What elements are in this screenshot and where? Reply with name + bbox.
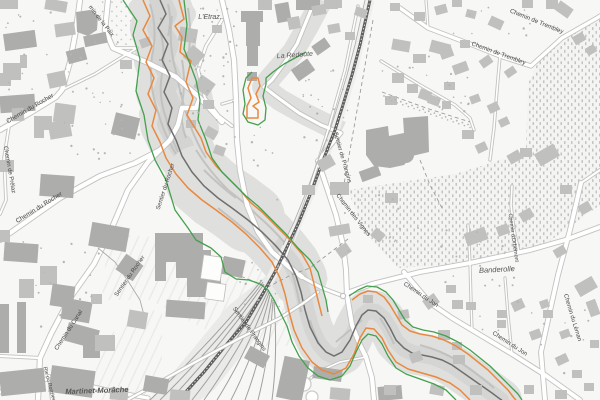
- svg-text:L'Etraz.: L'Etraz.: [198, 14, 222, 21]
- svg-text:Banderolle: Banderolle: [479, 264, 515, 275]
